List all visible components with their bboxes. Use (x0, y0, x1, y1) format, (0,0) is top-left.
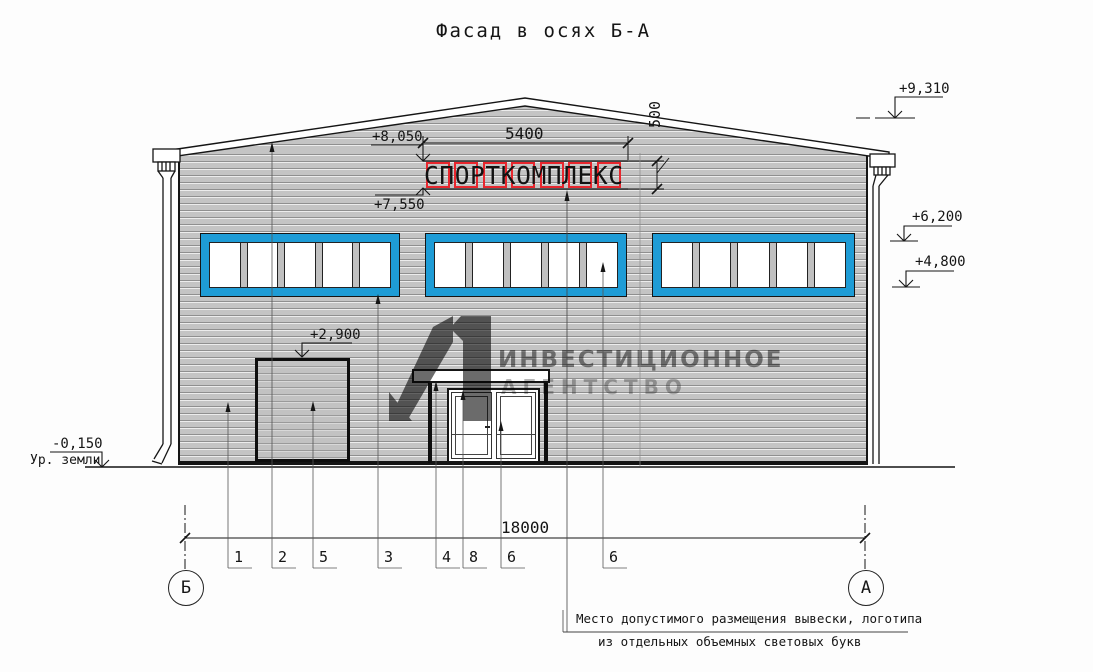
downspout-right (856, 118, 895, 464)
drawing-linework (0, 0, 1093, 672)
dimension-500-lines (628, 156, 669, 194)
callout-4: 4 (442, 548, 451, 566)
elevation-ridge: +9,310 (899, 81, 950, 97)
dim-sign-height: 500 (646, 101, 664, 128)
downspout-left (152, 149, 180, 464)
axis-label-a: А (861, 578, 871, 598)
callout-8: 8 (469, 548, 478, 566)
callout-3: 3 (384, 548, 393, 566)
elevation-sign-bottom: +7,550 (374, 197, 425, 213)
elevation-windows-top: +6,200 (912, 209, 963, 225)
callout-6a: 6 (507, 548, 516, 566)
dim-sign-width: 5400 (505, 124, 544, 143)
axis-bubble-b: Б (168, 570, 204, 606)
facade-drawing: ИНВЕСТИЦИОННОЕ АГЕНТСТВО (0, 0, 1093, 672)
elevation-windows-bottom: +4,800 (915, 254, 966, 270)
page-title: Фасад в осях Б-А (436, 20, 651, 42)
elevation-ground: -0,150 (52, 436, 103, 452)
callout-1: 1 (234, 548, 243, 566)
axis-bubble-a: А (848, 570, 884, 606)
callout-2: 2 (278, 548, 287, 566)
callout-5: 5 (319, 548, 328, 566)
axis-label-b: Б (181, 578, 191, 598)
note-line-2: из отдельных объемных световых букв (598, 634, 861, 649)
callout-6b: 6 (609, 548, 618, 566)
sign-text: СПОРТКОМПЛЕКС (424, 161, 628, 190)
elevation-gate-top: +2,900 (310, 327, 361, 343)
dim-total-width: 18000 (501, 518, 549, 537)
ground-level-label: Ур. земли (30, 453, 100, 468)
elevation-sign-top: +8,050 (372, 129, 423, 145)
note-line-1: Место допустимого размещения вывески, ло… (576, 611, 922, 626)
